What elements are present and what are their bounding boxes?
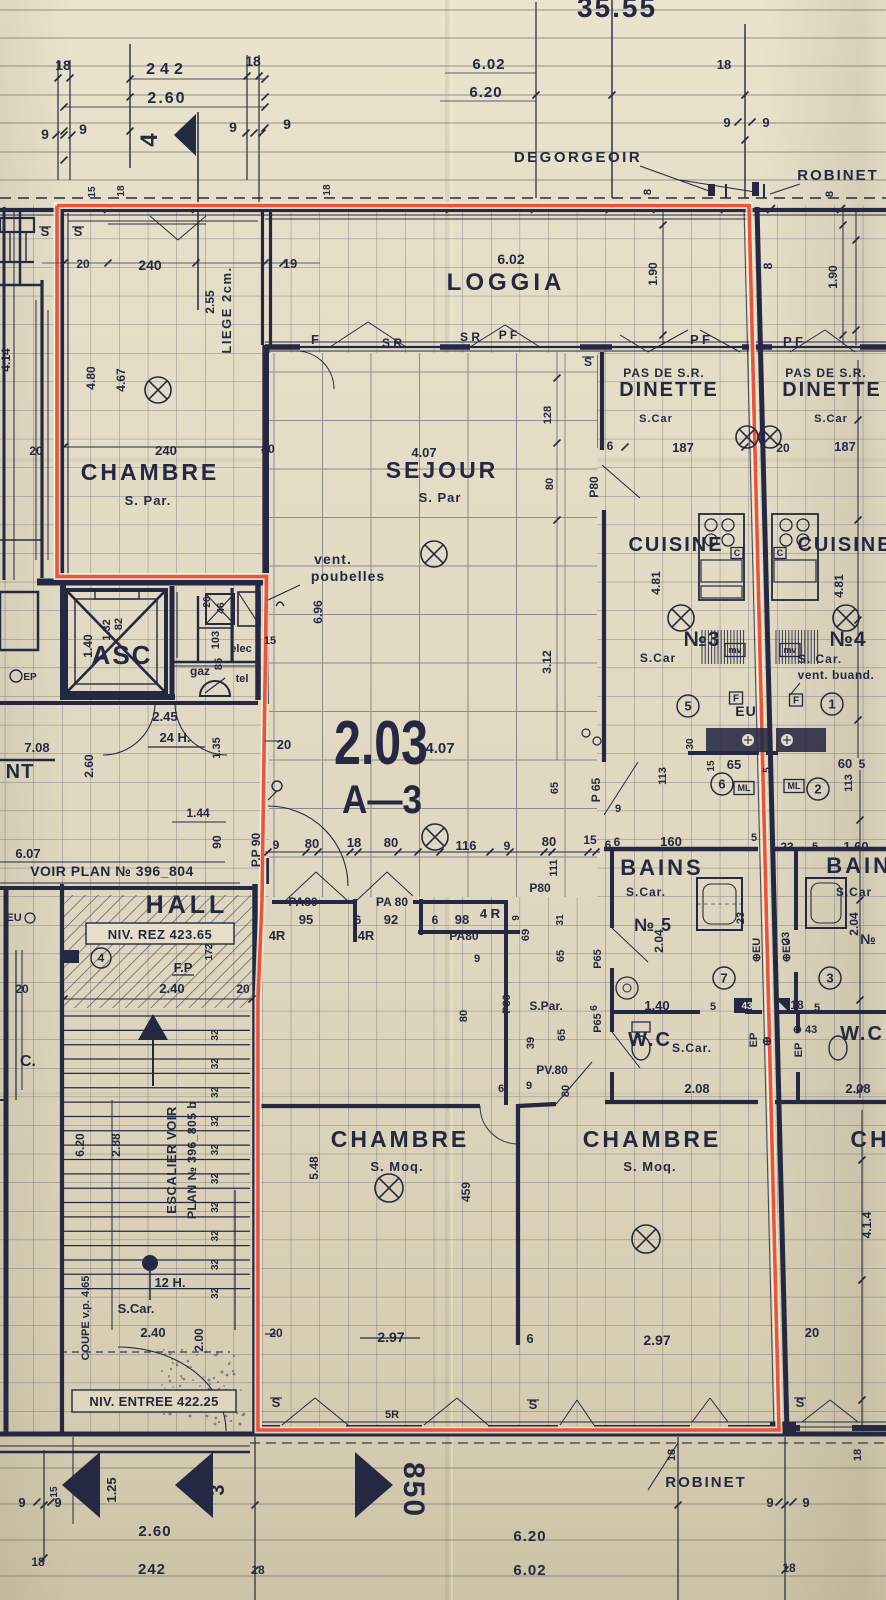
svg-text:1.25: 1.25 bbox=[104, 1477, 119, 1502]
svg-text:S. Moq.: S. Moq. bbox=[370, 1159, 423, 1174]
svg-text:18: 18 bbox=[116, 185, 127, 197]
svg-text:6.20: 6.20 bbox=[513, 1528, 546, 1545]
svg-text:39: 39 bbox=[525, 1037, 537, 1049]
svg-text:4R: 4R bbox=[358, 928, 375, 943]
svg-text:18: 18 bbox=[31, 1555, 45, 1569]
svg-text:128: 128 bbox=[542, 406, 554, 424]
svg-text:CHAMBRE: CHAMBRE bbox=[81, 459, 220, 485]
svg-text:18: 18 bbox=[717, 57, 731, 72]
svg-text:ROBINET: ROBINET bbox=[797, 167, 879, 184]
svg-text:4.81: 4.81 bbox=[649, 571, 663, 595]
svg-text:BAINS: BAINS bbox=[826, 853, 886, 878]
svg-text:P.P 90: P.P 90 bbox=[249, 833, 263, 868]
svg-text:20: 20 bbox=[236, 982, 250, 996]
svg-text:1.35: 1.35 bbox=[211, 737, 223, 758]
svg-text:BAINS: BAINS bbox=[620, 855, 703, 880]
svg-text:23: 23 bbox=[780, 932, 792, 944]
svg-text:CHAMBRE: CHAMBRE bbox=[331, 1126, 470, 1152]
svg-text:20: 20 bbox=[277, 737, 291, 752]
svg-text:S.Car: S.Car bbox=[639, 413, 673, 425]
svg-text:PAS DE S.R.: PAS DE S.R. bbox=[623, 366, 704, 380]
svg-text:2.00: 2.00 bbox=[192, 1328, 206, 1352]
svg-text:5: 5 bbox=[684, 699, 691, 714]
svg-text:9: 9 bbox=[229, 119, 237, 135]
svg-text:5.48: 5.48 bbox=[307, 1156, 321, 1180]
svg-text:ASC: ASC bbox=[92, 640, 153, 670]
svg-text:187: 187 bbox=[672, 440, 694, 455]
svg-text:P F: P F bbox=[499, 328, 517, 342]
svg-text:4.81: 4.81 bbox=[832, 574, 846, 598]
svg-text:9: 9 bbox=[511, 915, 522, 921]
svg-text:60: 60 bbox=[838, 756, 852, 771]
svg-text:32: 32 bbox=[210, 1115, 221, 1127]
svg-text:15: 15 bbox=[264, 635, 276, 647]
svg-text:82: 82 bbox=[113, 618, 125, 630]
svg-text:⊕EU: ⊕EU bbox=[751, 938, 763, 963]
svg-text:DINETTE: DINETTE bbox=[619, 379, 719, 401]
svg-text:vent. buand.: vent. buand. bbox=[798, 668, 875, 682]
svg-text:DEGORGEOIR: DEGORGEOIR bbox=[514, 149, 642, 166]
svg-text:6: 6 bbox=[607, 439, 614, 453]
svg-text:6.96: 6.96 bbox=[311, 600, 325, 624]
svg-text:6.07: 6.07 bbox=[15, 846, 40, 861]
svg-text:S: S bbox=[272, 1395, 281, 1410]
svg-text:32: 32 bbox=[210, 1086, 221, 1098]
svg-text:3: 3 bbox=[207, 1484, 229, 1495]
svg-text:S. Par: S. Par bbox=[419, 490, 462, 505]
svg-text:1.40: 1.40 bbox=[81, 634, 95, 658]
svg-text:3: 3 bbox=[826, 971, 833, 986]
svg-text:F: F bbox=[311, 332, 319, 347]
svg-text:32: 32 bbox=[210, 1201, 221, 1213]
svg-text:COUPE v.p. 4.65: COUPE v.p. 4.65 bbox=[80, 1276, 92, 1361]
svg-text:9: 9 bbox=[474, 953, 480, 965]
svg-text:26: 26 bbox=[202, 596, 213, 608]
svg-text:65: 65 bbox=[556, 1029, 568, 1041]
svg-text:92: 92 bbox=[384, 912, 398, 927]
svg-text:mv: mv bbox=[728, 645, 741, 655]
svg-text:2.04: 2.04 bbox=[652, 929, 666, 953]
svg-text:32: 32 bbox=[210, 1230, 221, 1242]
svg-text:S.Par.: S.Par. bbox=[529, 999, 562, 1013]
svg-text:S.Car.: S.Car. bbox=[626, 885, 666, 899]
svg-text:2.45: 2.45 bbox=[152, 709, 177, 724]
svg-text:2.08: 2.08 bbox=[684, 1081, 709, 1096]
svg-text:ESCALIER VOIR: ESCALIER VOIR bbox=[164, 1106, 179, 1214]
svg-text:23: 23 bbox=[780, 840, 794, 854]
svg-text:6: 6 bbox=[355, 913, 362, 927]
svg-text:20: 20 bbox=[29, 444, 43, 458]
svg-text:116: 116 bbox=[456, 838, 477, 853]
svg-text:7.08: 7.08 bbox=[24, 740, 49, 755]
svg-text:15: 15 bbox=[87, 186, 98, 198]
svg-text:4.67: 4.67 bbox=[114, 368, 128, 392]
svg-text:9: 9 bbox=[504, 839, 511, 853]
svg-text:P80: P80 bbox=[587, 476, 601, 498]
svg-text:35.55: 35.55 bbox=[577, 0, 657, 23]
svg-text:6.20: 6.20 bbox=[469, 84, 502, 101]
svg-text:6: 6 bbox=[432, 913, 439, 927]
svg-text:S: S bbox=[796, 1395, 805, 1410]
svg-text:2: 2 bbox=[814, 782, 821, 797]
svg-text:113: 113 bbox=[843, 774, 855, 792]
svg-text:5: 5 bbox=[710, 1001, 716, 1013]
svg-text:S: S bbox=[41, 224, 50, 239]
svg-text:18: 18 bbox=[782, 1561, 796, 1575]
svg-text:9: 9 bbox=[283, 116, 291, 132]
svg-text:8: 8 bbox=[642, 189, 654, 195]
svg-text:2.60: 2.60 bbox=[138, 1523, 171, 1540]
svg-text:9: 9 bbox=[615, 803, 621, 815]
svg-text:S. Par.: S. Par. bbox=[125, 493, 172, 508]
svg-text:poubelles: poubelles bbox=[311, 568, 385, 584]
svg-text:9: 9 bbox=[802, 1495, 809, 1510]
svg-text:4.14: 4.14 bbox=[0, 348, 13, 372]
svg-text:DINETTE: DINETTE bbox=[782, 379, 882, 401]
svg-text:80: 80 bbox=[544, 478, 556, 490]
svg-text:ML: ML bbox=[738, 783, 751, 793]
svg-text:9: 9 bbox=[41, 126, 49, 142]
svg-text:80: 80 bbox=[458, 1010, 470, 1022]
svg-text:P65: P65 bbox=[592, 1013, 604, 1033]
svg-text:65: 65 bbox=[727, 757, 741, 772]
svg-text:242: 242 bbox=[138, 1561, 166, 1578]
svg-text:8: 8 bbox=[824, 191, 836, 197]
svg-text:NIV. ENTREE 422.25: NIV. ENTREE 422.25 bbox=[89, 1394, 218, 1409]
svg-text:111: 111 bbox=[548, 859, 560, 876]
svg-text:S: S bbox=[74, 224, 83, 239]
svg-text:F: F bbox=[793, 696, 799, 707]
svg-text:32: 32 bbox=[210, 1029, 221, 1041]
svg-text:20: 20 bbox=[805, 1325, 819, 1340]
svg-text:18: 18 bbox=[245, 53, 261, 69]
svg-text:2.60: 2.60 bbox=[82, 754, 96, 778]
svg-text:S: S bbox=[529, 1397, 538, 1412]
svg-text:18: 18 bbox=[251, 1563, 265, 1577]
svg-text:9: 9 bbox=[79, 121, 87, 137]
svg-text:5: 5 bbox=[762, 767, 773, 773]
svg-text:CHAMBRE: CHAMBRE bbox=[583, 1126, 722, 1152]
svg-text:103: 103 bbox=[210, 631, 222, 649]
svg-text:LOGGIA: LOGGIA bbox=[447, 269, 566, 296]
svg-text:15: 15 bbox=[706, 760, 717, 772]
svg-text:30: 30 bbox=[685, 738, 696, 750]
svg-text:CUISINE: CUISINE bbox=[628, 534, 723, 556]
svg-text:15: 15 bbox=[583, 833, 597, 847]
svg-text:№: № bbox=[860, 931, 876, 947]
svg-text:240: 240 bbox=[155, 443, 177, 458]
svg-text:5: 5 bbox=[859, 757, 866, 771]
svg-text:HALL: HALL bbox=[146, 891, 229, 919]
svg-text:6: 6 bbox=[605, 838, 612, 852]
svg-text:vent.: vent. bbox=[314, 551, 352, 567]
svg-text:18: 18 bbox=[852, 1449, 864, 1461]
svg-text:P 65: P 65 bbox=[589, 777, 603, 802]
svg-text:PA 80: PA 80 bbox=[376, 895, 408, 909]
svg-text:80: 80 bbox=[384, 835, 398, 850]
svg-text:4 R: 4 R bbox=[480, 906, 501, 921]
svg-text:240: 240 bbox=[138, 257, 162, 273]
svg-text:32: 32 bbox=[210, 1144, 221, 1156]
svg-text:C: C bbox=[734, 548, 741, 558]
svg-text:5: 5 bbox=[812, 841, 818, 853]
svg-text:6.02: 6.02 bbox=[513, 1562, 546, 1579]
svg-text:90: 90 bbox=[210, 835, 224, 849]
svg-text:EU: EU bbox=[6, 912, 21, 924]
svg-text:NT: NT bbox=[6, 761, 35, 783]
svg-text:№4: №4 bbox=[829, 628, 866, 651]
svg-text:PLAN № 396_805 b: PLAN № 396_805 b bbox=[185, 1101, 199, 1219]
svg-text:32: 32 bbox=[210, 1287, 221, 1299]
svg-text:4.80: 4.80 bbox=[84, 366, 98, 390]
svg-text:2.40: 2.40 bbox=[140, 1325, 165, 1340]
svg-text:6.02: 6.02 bbox=[472, 56, 505, 73]
svg-text:9: 9 bbox=[526, 1080, 532, 1092]
svg-text:113: 113 bbox=[657, 767, 669, 785]
svg-text:PV.80: PV.80 bbox=[536, 1063, 568, 1077]
svg-text:1.90: 1.90 bbox=[826, 265, 840, 289]
svg-text:1.90: 1.90 bbox=[646, 262, 660, 286]
svg-text:65: 65 bbox=[549, 782, 561, 794]
svg-text:6: 6 bbox=[526, 1331, 533, 1346]
svg-text:9: 9 bbox=[54, 1495, 61, 1510]
svg-text:2.60: 2.60 bbox=[147, 90, 186, 107]
svg-text:9: 9 bbox=[762, 115, 769, 130]
svg-text:20: 20 bbox=[269, 1326, 283, 1340]
svg-text:2.04: 2.04 bbox=[847, 912, 861, 936]
svg-text:P F: P F bbox=[783, 334, 803, 349]
svg-text:2.97: 2.97 bbox=[377, 1329, 404, 1345]
svg-text:9: 9 bbox=[723, 115, 730, 130]
svg-text:ML: ML bbox=[788, 781, 801, 791]
svg-text:P65: P65 bbox=[592, 949, 604, 969]
svg-text:P80: P80 bbox=[501, 994, 513, 1014]
svg-text:⊕: ⊕ bbox=[762, 1034, 772, 1048]
svg-text:elec: elec bbox=[230, 643, 251, 655]
svg-text:5R: 5R bbox=[385, 1409, 399, 1421]
svg-text:4.07: 4.07 bbox=[411, 445, 436, 460]
svg-text:2.55: 2.55 bbox=[203, 290, 217, 314]
svg-text:EP: EP bbox=[23, 672, 37, 683]
svg-text:12 H.: 12 H. bbox=[154, 1275, 185, 1290]
svg-text:S.Car: S.Car bbox=[814, 413, 848, 425]
svg-text:80: 80 bbox=[542, 834, 556, 849]
svg-text:4: 4 bbox=[98, 951, 105, 965]
svg-text:EU: EU bbox=[735, 703, 756, 719]
svg-text:98: 98 bbox=[455, 912, 469, 927]
svg-text:18: 18 bbox=[55, 57, 71, 73]
svg-text:6: 6 bbox=[589, 1005, 600, 1011]
svg-text:1.44: 1.44 bbox=[186, 806, 210, 820]
svg-text:W.C: W.C bbox=[840, 1023, 884, 1045]
svg-text:S.Car.: S.Car. bbox=[118, 1301, 155, 1316]
svg-text:CUISINE: CUISINE bbox=[797, 534, 886, 556]
svg-text:tel: tel bbox=[236, 673, 249, 685]
svg-text:2.97: 2.97 bbox=[643, 1332, 670, 1348]
svg-text:18: 18 bbox=[666, 1449, 678, 1461]
svg-text:4R: 4R bbox=[269, 928, 286, 943]
svg-text:24 H.: 24 H. bbox=[159, 730, 190, 745]
svg-text:A—3: A—3 bbox=[342, 778, 422, 822]
svg-text:S.Car.: S.Car. bbox=[672, 1041, 712, 1055]
svg-text:VOIR PLAN № 396_804: VOIR PLAN № 396_804 bbox=[30, 863, 194, 879]
svg-text:NIV. REZ 423.65: NIV. REZ 423.65 bbox=[108, 927, 213, 942]
svg-text:6: 6 bbox=[614, 835, 621, 849]
svg-text:3.12: 3.12 bbox=[540, 650, 554, 674]
svg-text:9: 9 bbox=[766, 1495, 773, 1510]
svg-text:F.P: F.P bbox=[174, 960, 193, 975]
svg-text:6: 6 bbox=[718, 777, 725, 792]
svg-text:65: 65 bbox=[555, 950, 567, 962]
svg-text:18: 18 bbox=[322, 184, 333, 196]
svg-text:160: 160 bbox=[660, 834, 682, 849]
svg-text:459: 459 bbox=[459, 1182, 473, 1202]
svg-text:6.20: 6.20 bbox=[73, 1133, 87, 1157]
svg-text:95: 95 bbox=[299, 912, 313, 927]
svg-text:PA80: PA80 bbox=[288, 895, 317, 909]
svg-text:EP: EP bbox=[793, 1043, 805, 1058]
svg-text:5: 5 bbox=[751, 832, 757, 844]
svg-text:2.88: 2.88 bbox=[109, 1133, 123, 1157]
svg-text:PAS DE S.R.: PAS DE S.R. bbox=[785, 366, 866, 380]
svg-text:19: 19 bbox=[283, 256, 297, 271]
svg-text:187: 187 bbox=[834, 439, 856, 454]
svg-text:9: 9 bbox=[273, 838, 280, 852]
svg-text:8: 8 bbox=[761, 262, 775, 269]
svg-text:32: 32 bbox=[210, 1058, 221, 1070]
svg-text:242: 242 bbox=[146, 61, 188, 78]
svg-text:69: 69 bbox=[520, 929, 532, 941]
svg-text:20: 20 bbox=[76, 257, 90, 271]
svg-text:PA80: PA80 bbox=[449, 929, 478, 943]
svg-text:1: 1 bbox=[828, 697, 835, 712]
svg-text:1.40: 1.40 bbox=[644, 998, 669, 1013]
svg-text:46: 46 bbox=[216, 602, 227, 614]
svg-text:1.60: 1.60 bbox=[843, 839, 868, 854]
svg-text:85: 85 bbox=[213, 658, 225, 670]
svg-text:SEJOUR: SEJOUR bbox=[386, 457, 499, 483]
svg-text:6: 6 bbox=[498, 1083, 504, 1095]
svg-text:80: 80 bbox=[305, 836, 319, 851]
svg-text:4: 4 bbox=[136, 133, 163, 147]
svg-text:2.40: 2.40 bbox=[159, 981, 184, 996]
svg-text:31: 31 bbox=[555, 914, 566, 926]
svg-text:32: 32 bbox=[210, 1173, 221, 1185]
svg-text:P80: P80 bbox=[529, 881, 551, 895]
svg-text:5: 5 bbox=[814, 1002, 820, 1014]
svg-text:32: 32 bbox=[210, 1259, 221, 1271]
svg-text:S. Moq.: S. Moq. bbox=[623, 1159, 676, 1174]
svg-text:18: 18 bbox=[347, 835, 361, 850]
svg-text:9: 9 bbox=[18, 1495, 25, 1510]
svg-text:CH: CH bbox=[850, 1126, 886, 1152]
svg-text:LIEGE 2cm.: LIEGE 2cm. bbox=[219, 266, 234, 353]
svg-text:S.Car: S.Car bbox=[640, 651, 676, 665]
svg-text:mv: mv bbox=[783, 645, 796, 655]
svg-text:ROBINET: ROBINET bbox=[665, 1474, 747, 1491]
svg-text:172: 172 bbox=[204, 943, 215, 960]
svg-text:EP: EP bbox=[748, 1033, 760, 1048]
svg-text:6.02: 6.02 bbox=[497, 251, 524, 267]
svg-text:4.07: 4.07 bbox=[425, 740, 454, 757]
svg-text:C: C bbox=[777, 548, 784, 558]
svg-text:850: 850 bbox=[397, 1462, 430, 1518]
svg-text:7: 7 bbox=[720, 971, 727, 986]
svg-text:43: 43 bbox=[741, 1001, 753, 1012]
svg-text:1.32: 1.32 bbox=[101, 619, 113, 640]
svg-text:2.08: 2.08 bbox=[845, 1081, 870, 1096]
svg-text:2.03: 2.03 bbox=[334, 709, 428, 778]
